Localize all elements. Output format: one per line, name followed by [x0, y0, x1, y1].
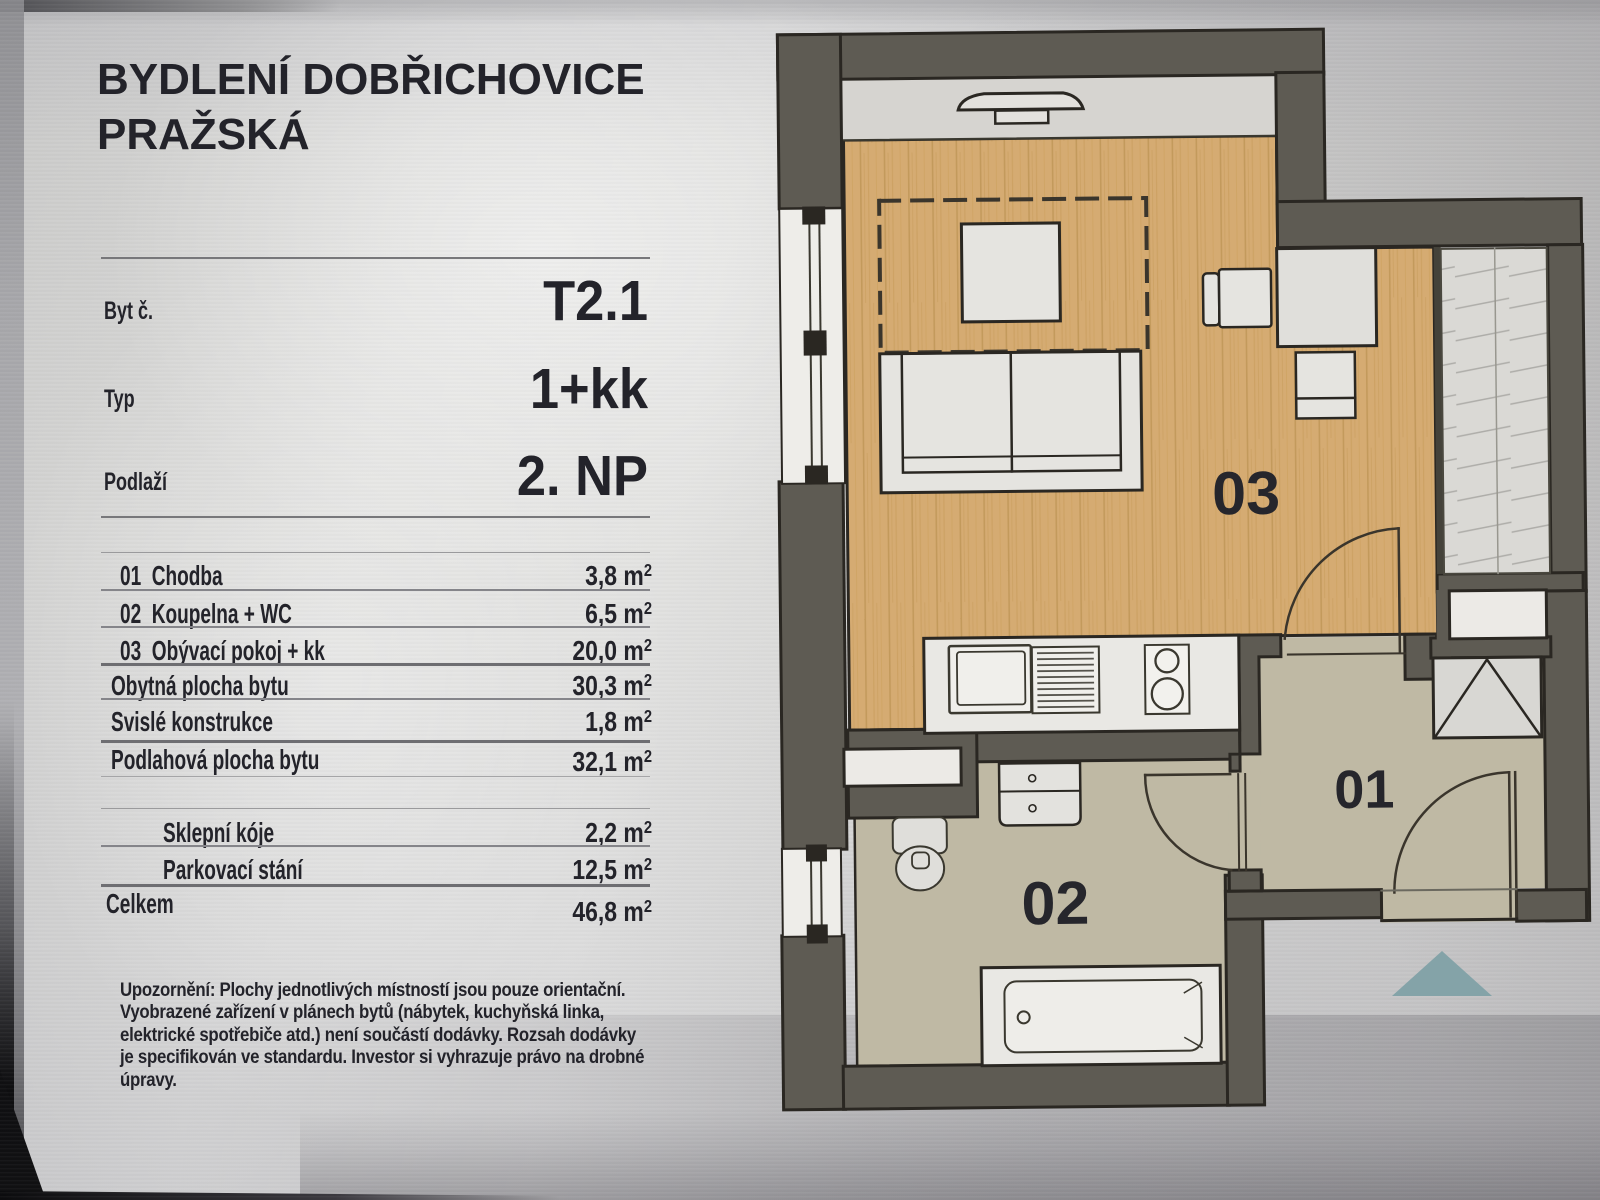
svg-text:01: 01 — [1334, 759, 1395, 820]
svg-text:02: 02 — [1021, 869, 1090, 938]
svg-text:03: 03 — [1212, 459, 1281, 528]
